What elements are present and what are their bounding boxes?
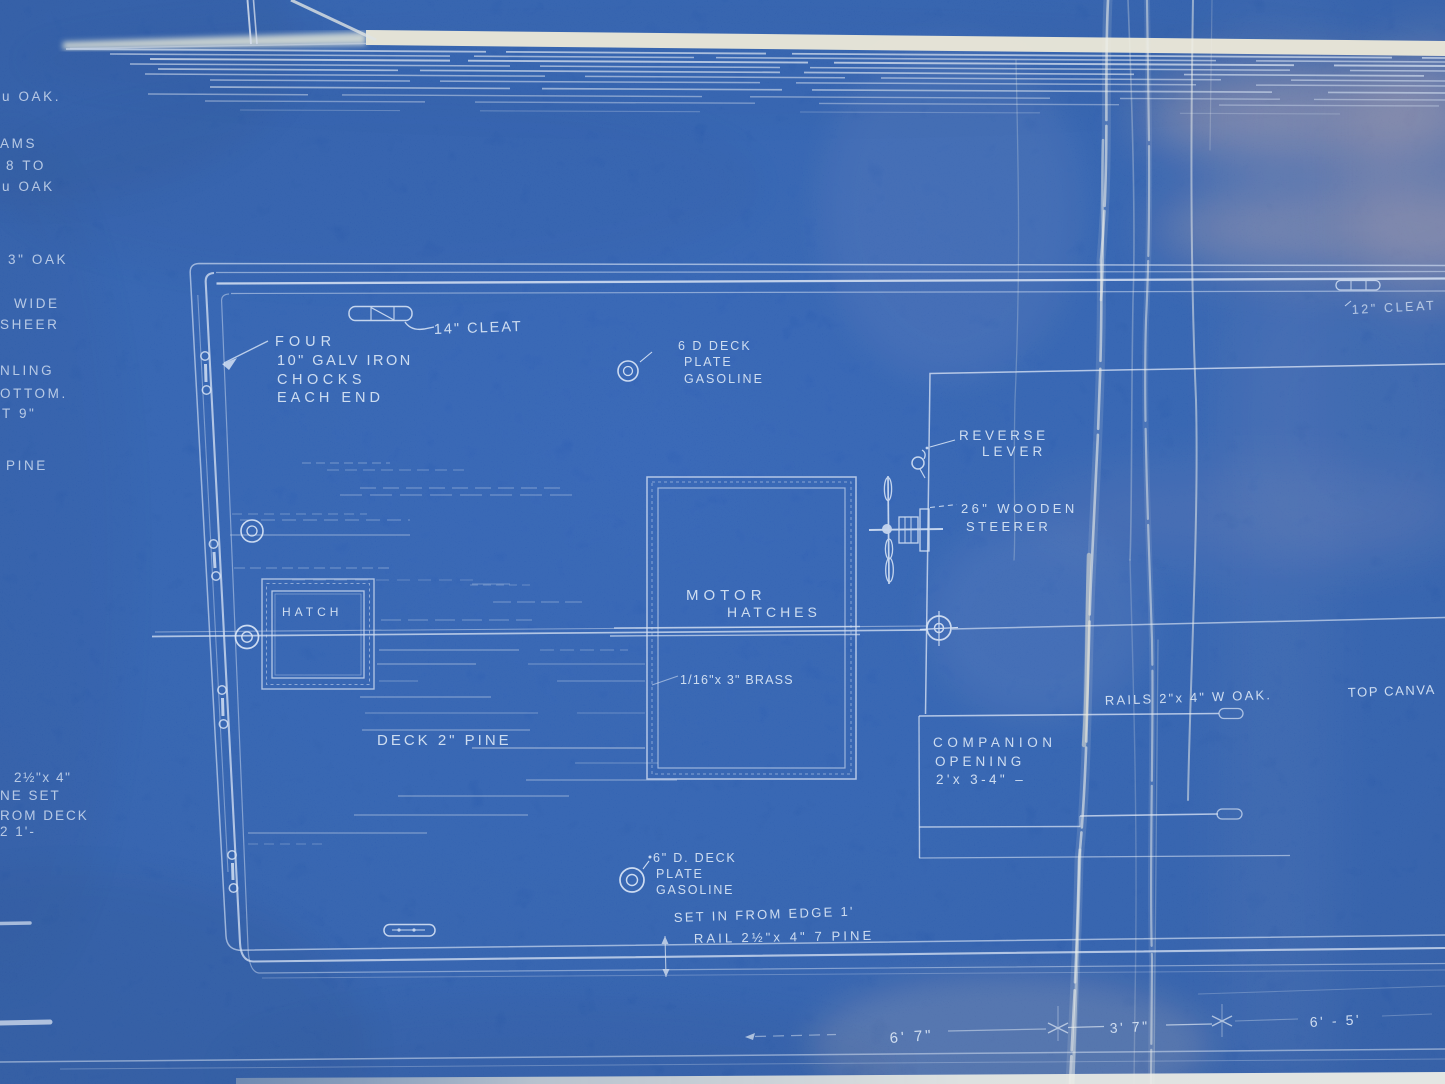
- svg-text:NE SET: NE SET: [0, 788, 61, 803]
- svg-text:SHEER: SHEER: [0, 317, 60, 332]
- svg-text:GASOLINE: GASOLINE: [656, 883, 734, 897]
- svg-text:3' 7": 3' 7": [1109, 1018, 1150, 1036]
- svg-text:DECK 2" PINE: DECK 2" PINE: [377, 732, 512, 749]
- svg-text:PLATE: PLATE: [684, 355, 733, 369]
- svg-text:NLING: NLING: [0, 363, 54, 378]
- svg-text:WIDE: WIDE: [14, 296, 60, 311]
- svg-text:26" WOODEN: 26" WOODEN: [961, 501, 1078, 516]
- svg-text:CHOCKS: CHOCKS: [277, 372, 366, 388]
- svg-text:6" D. DECK: 6" D. DECK: [653, 851, 737, 865]
- svg-text:u OAK.: u OAK.: [2, 89, 61, 104]
- svg-text:STEERER: STEERER: [966, 519, 1051, 534]
- svg-text:PINE: PINE: [6, 458, 48, 473]
- svg-text:GASOLINE: GASOLINE: [684, 372, 764, 386]
- svg-text:2½"x 4": 2½"x 4": [14, 770, 72, 785]
- svg-text:RAIL 2½"x 4" 7 PINE: RAIL 2½"x 4" 7 PINE: [694, 928, 875, 946]
- svg-text:6' 7": 6' 7": [889, 1027, 934, 1047]
- svg-text:HATCHES: HATCHES: [727, 604, 821, 620]
- svg-text:FOUR: FOUR: [275, 334, 336, 350]
- svg-text:2 1'-: 2 1'-: [0, 824, 36, 839]
- svg-text:REVERSE: REVERSE: [959, 428, 1049, 443]
- svg-text:3" OAK: 3" OAK: [8, 252, 68, 267]
- svg-text:u OAK: u OAK: [2, 179, 55, 194]
- svg-text:1/16"x 3" BRASS: 1/16"x 3" BRASS: [680, 673, 794, 687]
- svg-text:10" GALV IRON: 10" GALV IRON: [277, 353, 413, 369]
- svg-text:T 9": T 9": [2, 406, 36, 421]
- svg-text:COMPANION: COMPANION: [933, 735, 1057, 750]
- svg-text:14" CLEAT: 14" CLEAT: [434, 319, 523, 338]
- svg-text:6 D DECK: 6 D DECK: [678, 339, 752, 353]
- svg-text:HATCH: HATCH: [282, 605, 342, 619]
- svg-text:EACH END: EACH END: [277, 390, 384, 406]
- svg-text:OTTOM.: OTTOM.: [0, 386, 68, 401]
- svg-text:2'x 3-4" –: 2'x 3-4" –: [936, 772, 1026, 787]
- svg-text:AMS: AMS: [0, 136, 37, 151]
- svg-text:ROM DECK: ROM DECK: [0, 808, 89, 823]
- svg-text:PLATE: PLATE: [656, 867, 704, 881]
- svg-text:6' - 5': 6' - 5': [1309, 1011, 1361, 1030]
- svg-text:TOP CANVA: TOP CANVA: [1348, 682, 1437, 700]
- svg-text:8 TO: 8 TO: [6, 158, 46, 173]
- svg-text:OPENING: OPENING: [935, 754, 1025, 769]
- svg-text:MOTOR: MOTOR: [686, 587, 767, 604]
